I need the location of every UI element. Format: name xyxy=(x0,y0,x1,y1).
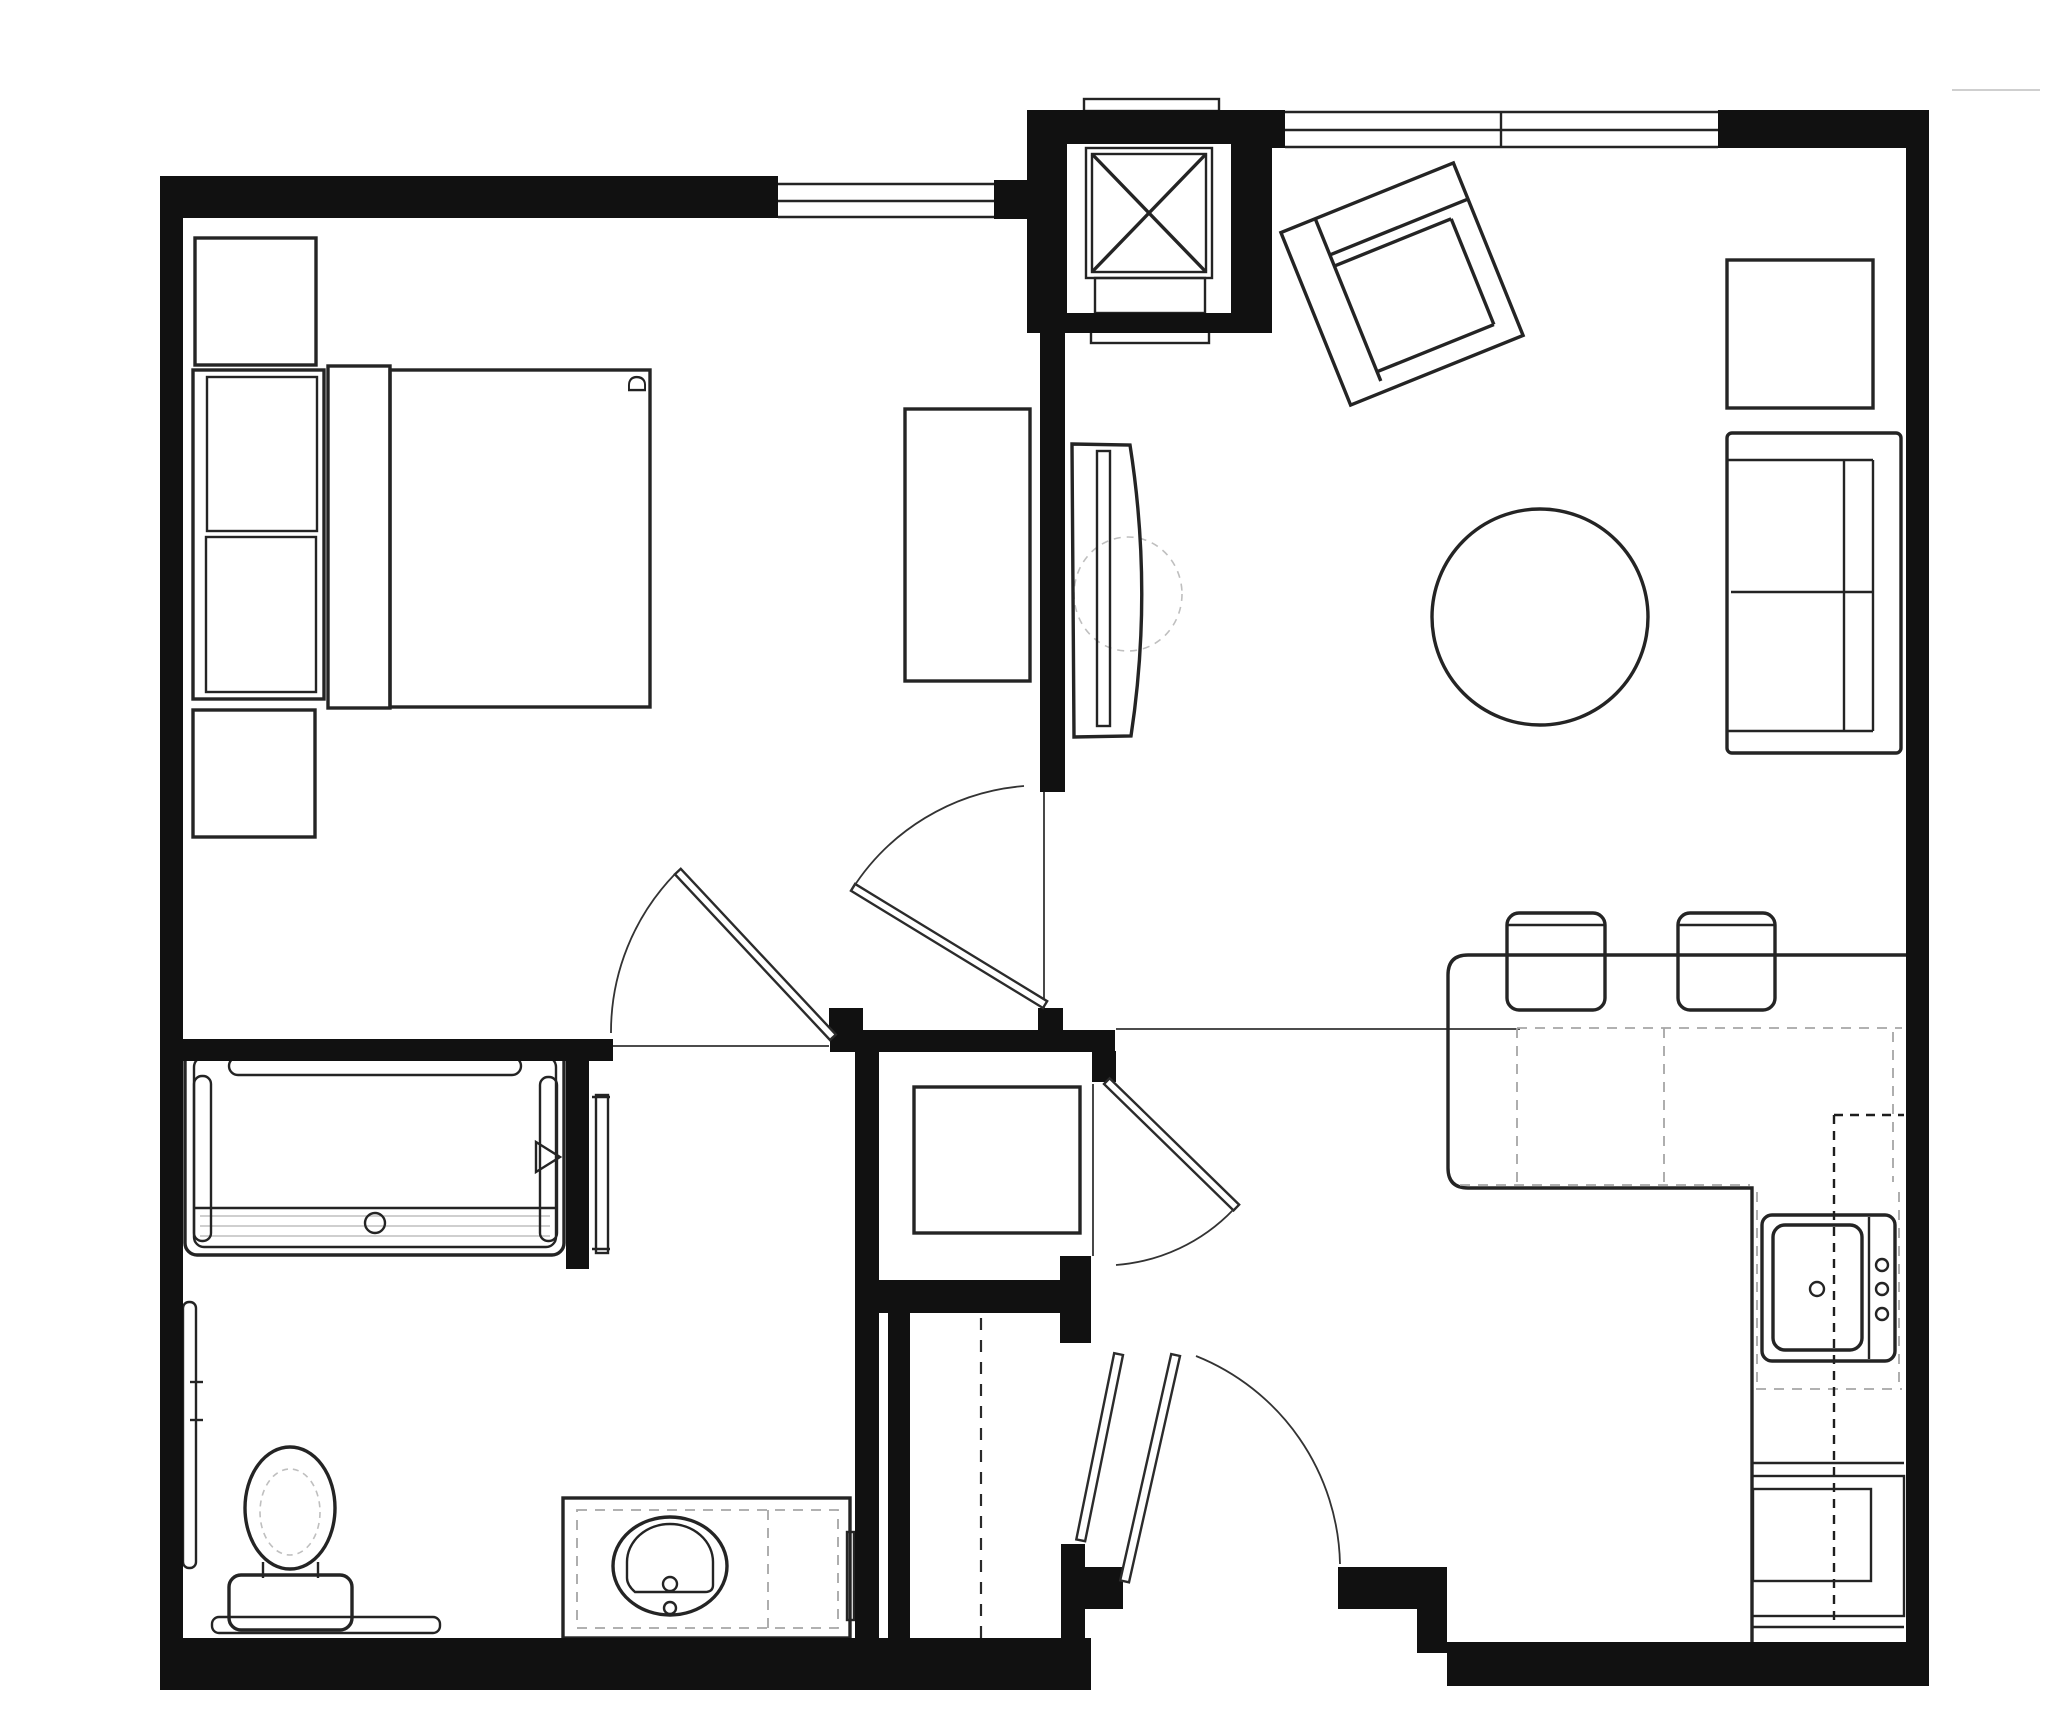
svg-text:D: D xyxy=(622,375,652,394)
